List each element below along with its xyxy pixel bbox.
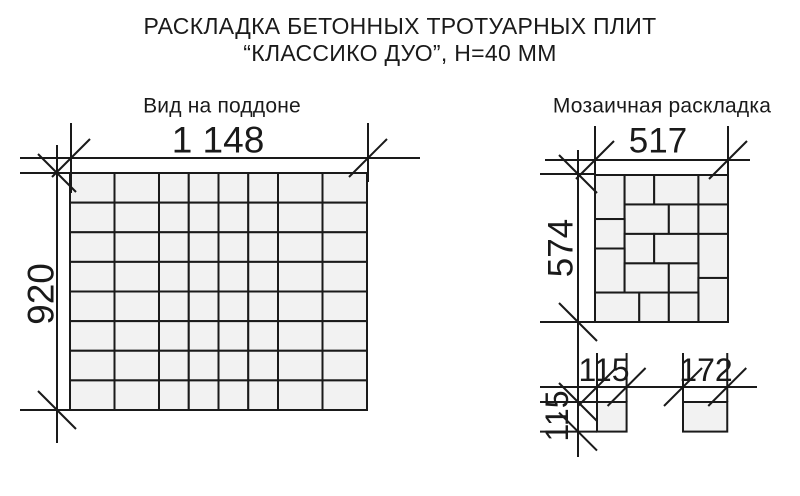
paving-tile	[114, 173, 158, 203]
paving-tile	[323, 292, 367, 322]
paving-tile	[114, 262, 158, 292]
paving-tile	[323, 203, 367, 233]
paving-tile	[698, 278, 728, 322]
paving-tile	[159, 292, 189, 322]
paving-tile	[248, 203, 278, 233]
title-line-2: “КЛАССИКО ДУО”, Н=40 ММ	[243, 42, 556, 65]
detail-rect-width-label: 172	[679, 354, 732, 386]
paving-tile	[159, 380, 189, 410]
paving-tile	[114, 232, 158, 262]
detail-square-height-label: 115	[541, 390, 573, 441]
mosaic-heading: Мозаичная раскладка	[553, 96, 771, 117]
paving-tile	[595, 249, 625, 293]
paving-tile	[278, 380, 322, 410]
paving-tile	[189, 173, 219, 203]
mosaic-width-dimension-label: 517	[629, 124, 687, 159]
paving-tile	[114, 203, 158, 233]
paving-tile	[698, 204, 728, 233]
paving-tile	[595, 219, 625, 248]
paving-tile	[114, 321, 158, 351]
paving-tile	[219, 380, 249, 410]
paving-tile	[625, 263, 669, 292]
paving-tile	[597, 402, 627, 432]
paving-tile	[323, 321, 367, 351]
paving-tile	[189, 351, 219, 381]
paving-tile	[595, 175, 625, 219]
paving-tile	[219, 292, 249, 322]
paving-tile	[70, 173, 114, 203]
paving-tile	[323, 351, 367, 381]
paving-tile	[248, 232, 278, 262]
pallet-heading: Вид на поддоне	[143, 96, 301, 117]
paving-tile	[278, 262, 322, 292]
mosaic-height-dimension-label: 574	[544, 219, 579, 277]
pallet-height-dimension-label: 920	[23, 263, 60, 325]
paving-tile	[278, 321, 322, 351]
paving-tile	[278, 232, 322, 262]
paving-tile	[159, 321, 189, 351]
paving-tile	[248, 380, 278, 410]
paving-tile	[248, 292, 278, 322]
paving-tile	[323, 380, 367, 410]
paving-tile	[278, 292, 322, 322]
paving-tile	[219, 321, 249, 351]
paving-tile	[159, 232, 189, 262]
paving-tile	[698, 175, 728, 204]
paving-tile	[278, 203, 322, 233]
paving-tile	[189, 321, 219, 351]
paving-tile	[278, 351, 322, 381]
paving-tile	[189, 292, 219, 322]
paving-tile	[248, 262, 278, 292]
paving-tile	[219, 351, 249, 381]
paving-tile	[323, 173, 367, 203]
paving-tile	[70, 351, 114, 381]
paving-tile	[189, 380, 219, 410]
paving-tile	[219, 203, 249, 233]
paving-tile	[595, 293, 639, 322]
paving-tile	[159, 351, 189, 381]
paving-tile	[323, 262, 367, 292]
paving-tile	[189, 232, 219, 262]
paving-tile	[159, 262, 189, 292]
paving-tile	[278, 173, 322, 203]
drawing-sheet: РАСКЛАДКА БЕТОННЫХ ТРОТУАРНЫХ ПЛИТ “КЛАС…	[0, 0, 800, 496]
paving-tile	[625, 204, 669, 233]
paving-tile	[159, 173, 189, 203]
paving-tile	[669, 204, 699, 233]
paving-tile	[248, 321, 278, 351]
paving-tile	[159, 203, 189, 233]
paving-tile	[219, 262, 249, 292]
paving-tile	[114, 351, 158, 381]
paving-tile	[189, 262, 219, 292]
paving-tile	[698, 234, 728, 278]
paving-tile	[189, 203, 219, 233]
paving-tile	[219, 232, 249, 262]
paving-tile	[654, 234, 698, 263]
paving-tile	[639, 293, 669, 322]
paving-tile	[323, 232, 367, 262]
paving-tile	[625, 234, 655, 263]
paving-tile	[248, 351, 278, 381]
mosaic-grid	[595, 175, 728, 322]
paving-tile	[248, 173, 278, 203]
paving-tile	[70, 203, 114, 233]
pallet-grid	[70, 173, 367, 410]
diagram-canvas	[0, 0, 800, 496]
title-line-1: РАСКЛАДКА БЕТОННЫХ ТРОТУАРНЫХ ПЛИТ	[144, 15, 657, 38]
paving-tile	[114, 380, 158, 410]
detail-square-width-label: 115	[578, 354, 629, 386]
paving-tile	[683, 402, 727, 432]
paving-tile	[669, 263, 699, 292]
detail-tiles	[597, 402, 727, 432]
paving-tile	[654, 175, 698, 204]
paving-tile	[114, 292, 158, 322]
paving-tile	[70, 262, 114, 292]
paving-tile	[669, 293, 699, 322]
paving-tile	[70, 292, 114, 322]
paving-tile	[219, 173, 249, 203]
pallet-width-dimension-label: 1 148	[172, 122, 265, 159]
paving-tile	[70, 380, 114, 410]
paving-tile	[70, 232, 114, 262]
paving-tile	[625, 175, 655, 204]
paving-tile	[70, 321, 114, 351]
